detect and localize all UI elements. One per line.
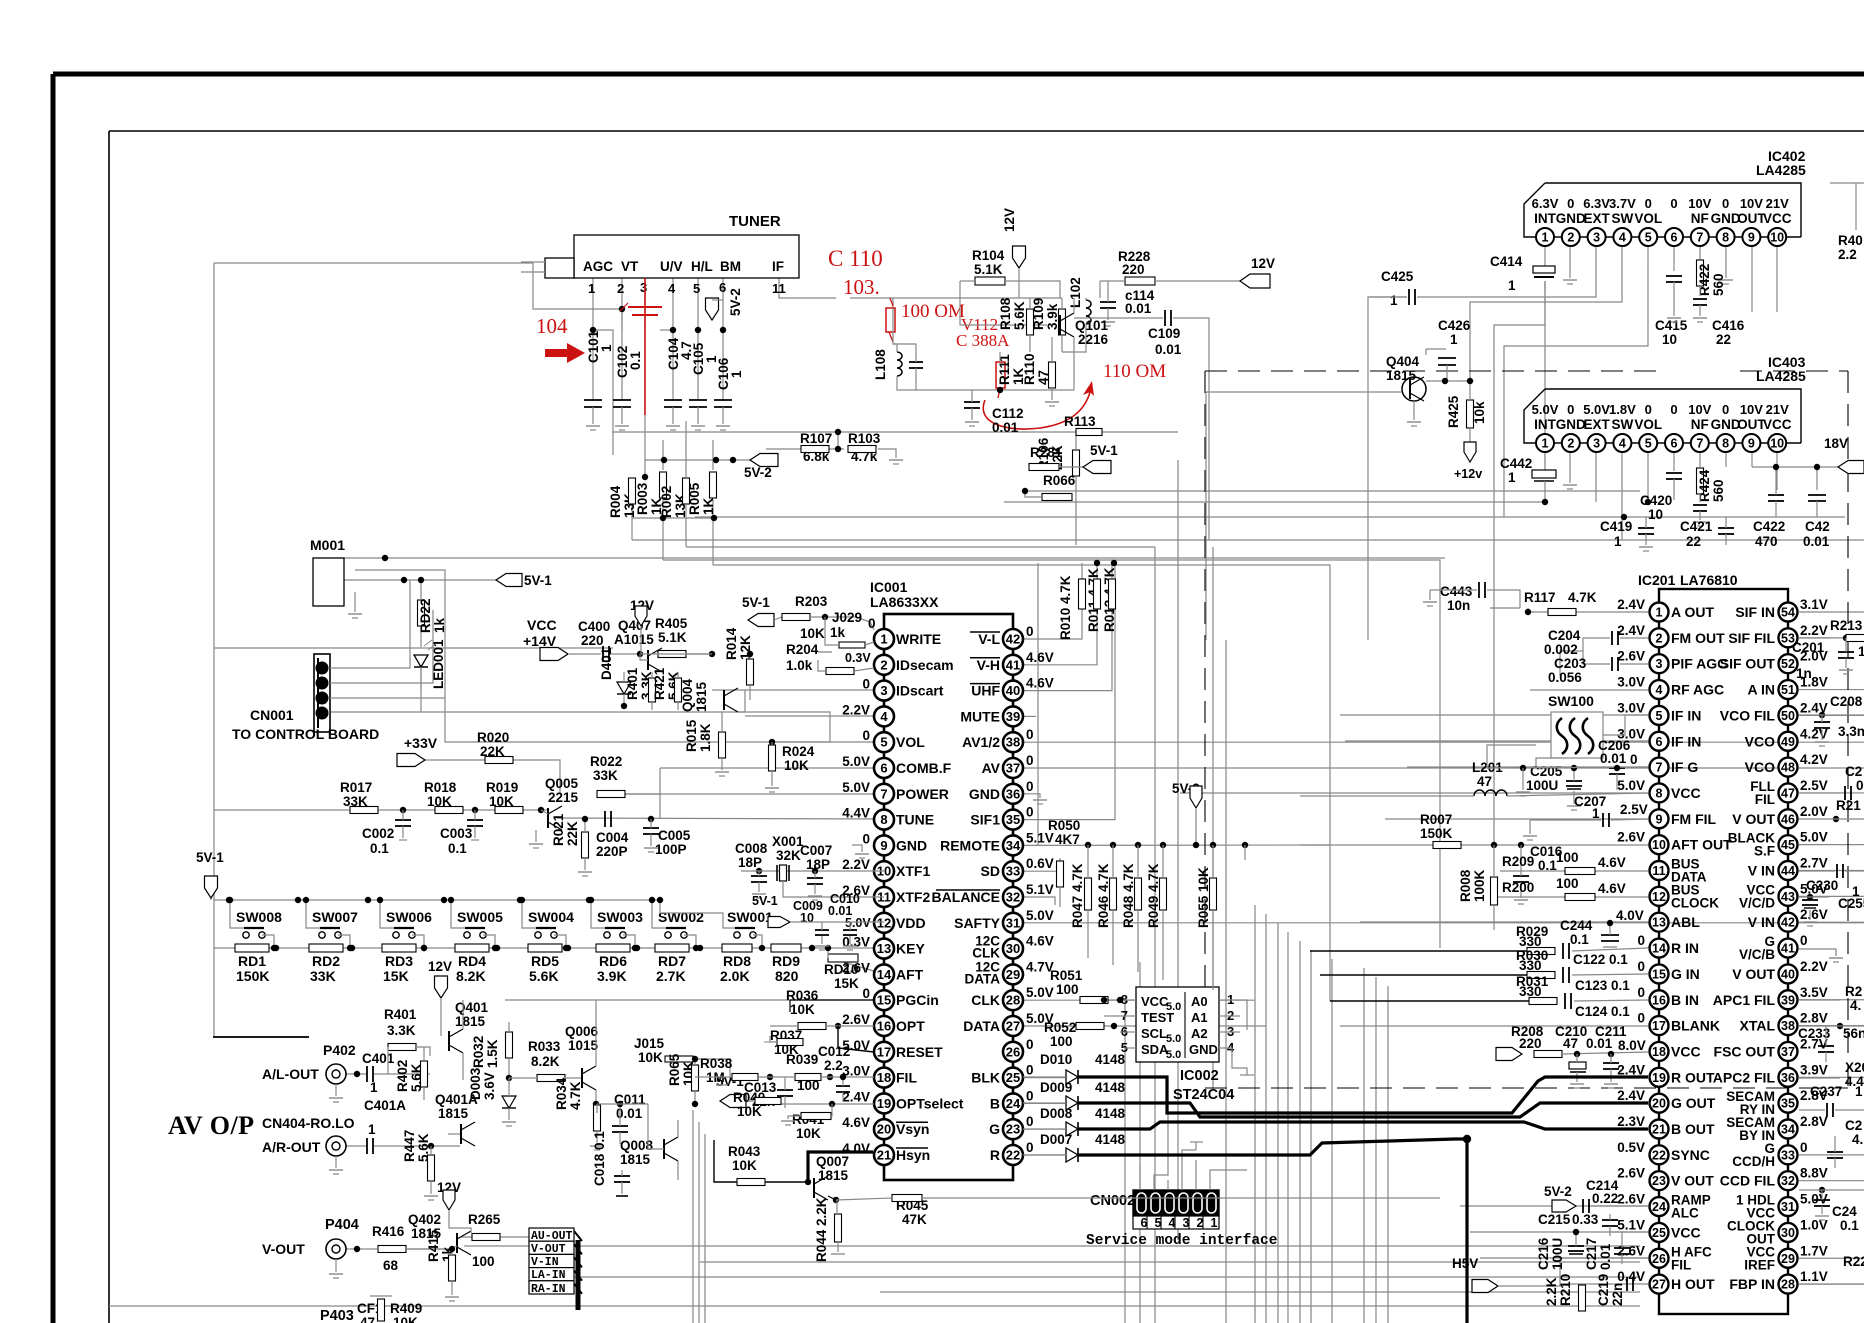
svg-text:R422: R422: [1697, 264, 1712, 296]
svg-text:D008: D008: [1040, 1106, 1073, 1121]
svg-text:VCC: VCC: [1763, 417, 1792, 432]
svg-text:31: 31: [1006, 915, 1020, 930]
svg-text:S.F: S.F: [1754, 844, 1775, 859]
svg-text:R033: R033: [528, 1039, 561, 1054]
svg-text:SIF IN: SIF IN: [1735, 604, 1775, 620]
svg-text:0.002: 0.002: [1544, 642, 1578, 657]
svg-text:IF IN: IF IN: [1671, 733, 1701, 749]
svg-text:1: 1: [1614, 534, 1622, 549]
svg-text:4148: 4148: [1095, 1132, 1126, 1147]
svg-text:Q404: Q404: [1386, 354, 1420, 369]
svg-text:2215: 2215: [548, 790, 579, 805]
svg-text:2: 2: [880, 657, 887, 672]
svg-text:25: 25: [1006, 1070, 1020, 1085]
svg-text:44: 44: [1781, 864, 1795, 878]
svg-text:R IN: R IN: [1671, 940, 1699, 956]
svg-text:R415: R415: [426, 1229, 441, 1262]
svg-text:1815: 1815: [694, 681, 709, 712]
svg-text:GND: GND: [969, 786, 1000, 802]
svg-text:C255: C255: [1838, 896, 1864, 911]
svg-text:R203: R203: [795, 594, 828, 609]
svg-text:35: 35: [1781, 1097, 1795, 1111]
svg-text:3: 3: [1593, 231, 1600, 245]
svg-text:B IN: B IN: [1671, 992, 1699, 1008]
svg-text:C002: C002: [362, 826, 394, 841]
svg-text:V-IN: V-IN: [531, 1256, 559, 1269]
svg-text:SW006: SW006: [386, 909, 432, 925]
svg-text:C205: C205: [1530, 764, 1563, 779]
svg-text:8.8V: 8.8V: [1800, 1166, 1828, 1181]
svg-text:16: 16: [1652, 993, 1666, 1007]
svg-text:68: 68: [383, 1258, 399, 1273]
svg-text:GND: GND: [1556, 211, 1586, 226]
svg-text:A/L-OUT: A/L-OUT: [262, 1066, 319, 1082]
svg-text:820: 820: [775, 968, 799, 984]
svg-text:4: 4: [668, 281, 676, 296]
svg-text:22: 22: [1716, 332, 1731, 347]
svg-text:10n: 10n: [1447, 598, 1470, 613]
svg-text:R019: R019: [486, 780, 518, 795]
svg-text:18P: 18P: [806, 857, 830, 872]
svg-text:R065: R065: [667, 1053, 682, 1086]
svg-text:2.4V: 2.4V: [1617, 597, 1645, 612]
svg-text:43: 43: [1781, 890, 1795, 904]
svg-text:0: 0: [1567, 402, 1574, 417]
svg-text:1K: 1K: [701, 497, 716, 515]
svg-text:R227: R227: [1843, 1254, 1864, 1269]
svg-text:2.6V: 2.6V: [1617, 1192, 1645, 1207]
svg-text:H/L: H/L: [691, 259, 713, 274]
svg-text:37: 37: [1781, 1045, 1795, 1059]
svg-text:R018: R018: [424, 780, 457, 795]
svg-text:100: 100: [1556, 850, 1579, 865]
svg-text:X20: X20: [1845, 1060, 1864, 1075]
svg-text:6: 6: [1656, 735, 1663, 749]
svg-text:1: 1: [1542, 231, 1549, 245]
svg-text:4: 4: [1619, 437, 1626, 451]
svg-text:RD3: RD3: [385, 953, 413, 969]
svg-text:C 388A: C 388A: [956, 331, 1010, 350]
svg-text:10K: 10K: [790, 1002, 815, 1017]
svg-text:0: 0: [1800, 1140, 1808, 1155]
svg-text:5.1K: 5.1K: [658, 630, 687, 645]
svg-text:0: 0: [1026, 805, 1034, 820]
svg-text:2.5V: 2.5V: [1620, 802, 1648, 817]
svg-text:0: 0: [1670, 196, 1677, 211]
svg-text:V-H: V-H: [977, 657, 1000, 673]
svg-text:0.01: 0.01: [1125, 301, 1152, 316]
svg-text:6.3V: 6.3V: [1583, 196, 1610, 211]
svg-text:RD1: RD1: [238, 953, 266, 969]
svg-text:10: 10: [1770, 231, 1784, 245]
svg-text:V OUT: V OUT: [1671, 1173, 1714, 1189]
svg-text:VCC: VCC: [527, 617, 557, 633]
svg-text:RD8: RD8: [723, 953, 751, 969]
svg-text:C122 0.1: C122 0.1: [1573, 952, 1628, 967]
svg-text:0: 0: [1026, 1140, 1034, 1155]
svg-text:ABL: ABL: [1671, 914, 1700, 930]
svg-text:5.0V: 5.0V: [1532, 402, 1559, 417]
svg-text:17: 17: [1652, 1019, 1666, 1033]
svg-text:FIL: FIL: [1755, 792, 1775, 807]
svg-text:1815: 1815: [620, 1152, 651, 1167]
svg-text:16: 16: [877, 1019, 891, 1034]
svg-text:C123 0.1: C123 0.1: [1575, 978, 1630, 993]
svg-text:0: 0: [1637, 985, 1645, 1000]
svg-text:R038: R038: [700, 1056, 733, 1071]
svg-text:V-L: V-L: [978, 631, 1000, 647]
svg-text:R416: R416: [372, 1224, 405, 1239]
svg-text:EXT: EXT: [1583, 417, 1610, 432]
svg-text:1: 1: [368, 1122, 376, 1137]
svg-text:SW008: SW008: [236, 909, 282, 925]
svg-text:C2: C2: [1845, 764, 1862, 779]
svg-text:47: 47: [1563, 1036, 1578, 1051]
svg-text:C401: C401: [362, 1051, 395, 1066]
svg-text:3.0V: 3.0V: [1617, 700, 1645, 715]
svg-text:AV1/2: AV1/2: [962, 734, 1000, 750]
svg-text:5.0V: 5.0V: [1800, 830, 1828, 845]
svg-text:A1: A1: [1191, 1010, 1208, 1025]
svg-text:VCO: VCO: [1745, 733, 1775, 749]
svg-text:35: 35: [1006, 812, 1020, 827]
svg-text:R109: R109: [1031, 298, 1046, 330]
svg-text:10K: 10K: [796, 1126, 821, 1141]
svg-text:VT: VT: [621, 259, 639, 274]
svg-text:0: 0: [1670, 402, 1677, 417]
svg-text:C201: C201: [1792, 640, 1825, 655]
svg-text:C400: C400: [578, 619, 610, 634]
svg-text:0: 0: [1637, 933, 1645, 948]
svg-text:5: 5: [693, 281, 700, 296]
svg-text:4148: 4148: [1095, 1080, 1126, 1095]
svg-text:15: 15: [877, 993, 891, 1008]
svg-text:WRITE: WRITE: [896, 631, 941, 647]
svg-text:3.9V: 3.9V: [1800, 1062, 1828, 1077]
svg-text:9: 9: [1748, 231, 1755, 245]
svg-text:15K: 15K: [834, 976, 859, 991]
svg-text:VDD: VDD: [896, 915, 926, 931]
svg-text:SCL: SCL: [1141, 1026, 1167, 1041]
svg-text:6: 6: [1671, 437, 1678, 451]
svg-text:100U: 100U: [1550, 1238, 1565, 1270]
svg-text:0.5V: 0.5V: [1617, 1140, 1645, 1155]
svg-text:LA8633XX: LA8633XX: [870, 594, 939, 610]
svg-text:RD4: RD4: [458, 953, 486, 969]
svg-text:R020: R020: [477, 730, 509, 745]
svg-text:10K: 10K: [393, 1315, 418, 1323]
svg-text:14: 14: [877, 967, 892, 982]
svg-text:2.2V: 2.2V: [842, 702, 870, 717]
svg-text:Q004: Q004: [680, 678, 695, 712]
svg-text:560: 560: [1711, 479, 1726, 502]
svg-text:R039: R039: [786, 1052, 818, 1067]
svg-text:KEY: KEY: [896, 941, 925, 957]
svg-text:Service mode interface: Service mode interface: [1086, 1233, 1277, 1249]
svg-text:4.6V: 4.6V: [1026, 676, 1054, 691]
svg-text:SW003: SW003: [597, 909, 643, 925]
svg-text:5.1V: 5.1V: [1617, 1217, 1645, 1232]
svg-text:1k: 1k: [1858, 644, 1864, 659]
svg-text:27: 27: [1006, 1019, 1020, 1034]
svg-text:RD6: RD6: [599, 953, 627, 969]
svg-text:C244: C244: [1560, 918, 1593, 933]
svg-text:5.0V: 5.0V: [1800, 1192, 1828, 1207]
svg-text:2: 2: [1656, 631, 1663, 645]
svg-text:0: 0: [1637, 959, 1645, 974]
svg-text:110 OM: 110 OM: [1103, 361, 1166, 382]
svg-text:14: 14: [1652, 942, 1666, 956]
svg-text:4.2V: 4.2V: [1800, 752, 1828, 767]
svg-text:0.3V: 0.3V: [842, 935, 870, 950]
svg-text:5.0V: 5.0V: [842, 780, 870, 795]
svg-text:42: 42: [1781, 916, 1795, 930]
svg-text:5.1V: 5.1V: [1026, 882, 1054, 897]
svg-text:SW002: SW002: [658, 909, 704, 925]
svg-text:1: 1: [1508, 470, 1516, 485]
svg-text:SW004: SW004: [528, 909, 574, 925]
svg-text:56n: 56n: [1843, 1026, 1864, 1041]
svg-text:3.6V: 3.6V: [482, 1072, 497, 1100]
svg-text:5.0: 5.0: [1166, 1049, 1181, 1061]
svg-text:C2: C2: [1845, 1118, 1862, 1133]
svg-text:3.0V: 3.0V: [842, 1064, 870, 1079]
svg-text:R032: R032: [471, 1036, 486, 1068]
svg-text:4.0V: 4.0V: [1616, 908, 1644, 923]
svg-text:10K: 10K: [800, 626, 825, 641]
svg-text:1: 1: [1508, 278, 1516, 293]
svg-text:NF: NF: [1691, 417, 1709, 432]
svg-text:7: 7: [1696, 437, 1703, 451]
svg-text:0.3V: 0.3V: [845, 651, 871, 665]
svg-text:Q101: Q101: [1075, 318, 1109, 333]
svg-text:R21: R21: [1836, 798, 1861, 813]
svg-text:6: 6: [1141, 1216, 1148, 1230]
svg-text:R447: R447: [402, 1130, 417, 1162]
svg-text:3.0V: 3.0V: [1617, 675, 1645, 690]
svg-text:470: 470: [1755, 534, 1778, 549]
svg-text:7: 7: [1656, 761, 1663, 775]
svg-text:3.3n: 3.3n: [1838, 724, 1864, 739]
svg-text:V OUT: V OUT: [1732, 811, 1775, 827]
svg-text:5V-1: 5V-1: [524, 573, 552, 588]
svg-text:8: 8: [1722, 437, 1729, 451]
svg-text:4.6V: 4.6V: [1598, 881, 1626, 896]
svg-text:BALANCE: BALANCE: [932, 889, 1000, 905]
svg-text:CLK: CLK: [972, 946, 1000, 961]
svg-text:24: 24: [1652, 1200, 1666, 1214]
svg-text:2.6V: 2.6V: [1617, 1243, 1645, 1258]
svg-text:R40: R40: [1838, 233, 1863, 248]
svg-text:2.2V: 2.2V: [1800, 623, 1828, 638]
svg-text:0.056: 0.056: [1548, 670, 1582, 685]
svg-text:TUNE: TUNE: [896, 812, 934, 828]
svg-text:20: 20: [1652, 1097, 1666, 1111]
svg-text:IREF: IREF: [1744, 1257, 1775, 1272]
svg-text:2.4V: 2.4V: [1617, 1088, 1645, 1103]
svg-text:150K: 150K: [236, 968, 269, 984]
svg-text:R424: R424: [1697, 469, 1712, 502]
svg-text:EXT: EXT: [1583, 211, 1610, 226]
svg-text:4148: 4148: [1095, 1052, 1126, 1067]
svg-text:4K7: 4K7: [1055, 832, 1080, 847]
svg-text:C 110: C 110: [828, 246, 883, 271]
svg-text:C217: C217: [1584, 1238, 1599, 1270]
svg-text:18: 18: [1652, 1045, 1666, 1059]
svg-text:4: 4: [880, 709, 888, 724]
svg-text:C230: C230: [1806, 878, 1838, 893]
svg-text:C208: C208: [1830, 694, 1863, 709]
svg-text:2: 2: [1567, 437, 1574, 451]
svg-text:150K: 150K: [1420, 826, 1453, 841]
svg-text:C216: C216: [1536, 1237, 1551, 1270]
svg-text:0.01: 0.01: [1598, 1243, 1613, 1270]
svg-text:IF: IF: [772, 259, 784, 274]
svg-text:33: 33: [1006, 864, 1020, 879]
svg-text:IF G: IF G: [1671, 759, 1698, 775]
svg-text:R048 4.7K: R048 4.7K: [1121, 863, 1136, 928]
svg-text:R014: R014: [724, 627, 739, 660]
svg-text:20: 20: [877, 1122, 891, 1137]
svg-text:FIL: FIL: [896, 1070, 917, 1086]
svg-text:RA-IN: RA-IN: [531, 1283, 566, 1296]
svg-text:2.3V: 2.3V: [1617, 1114, 1645, 1129]
svg-text:5V-2: 5V-2: [1544, 1184, 1572, 1199]
svg-text:INT: INT: [1534, 417, 1557, 432]
svg-text:H5V: H5V: [1452, 1256, 1478, 1271]
svg-text:2.5V: 2.5V: [1800, 778, 1828, 793]
svg-text:330: 330: [1519, 984, 1542, 999]
svg-text:1.0k: 1.0k: [786, 658, 813, 673]
svg-text:OPT: OPT: [896, 1018, 925, 1034]
svg-text:CLK: CLK: [971, 992, 1000, 1008]
svg-text:INT: INT: [1534, 211, 1557, 226]
svg-text:2: 2: [617, 281, 624, 296]
svg-text:D009: D009: [1040, 1080, 1072, 1095]
svg-text:30: 30: [1006, 941, 1020, 956]
svg-text:23: 23: [1006, 1122, 1020, 1137]
svg-text:VOL: VOL: [896, 734, 925, 750]
svg-text:R421: R421: [652, 667, 667, 700]
svg-text:4: 4: [1169, 1216, 1176, 1230]
svg-text:C005: C005: [658, 828, 691, 843]
svg-text:22K: 22K: [565, 821, 580, 846]
svg-text:XTF1: XTF1: [896, 863, 930, 879]
svg-text:100: 100: [1050, 1034, 1073, 1049]
svg-text:0.: 0.: [1856, 778, 1864, 793]
svg-text:3.5V: 3.5V: [1800, 985, 1828, 1000]
svg-text:12V: 12V: [1002, 208, 1017, 232]
svg-text:34: 34: [1781, 1123, 1795, 1137]
svg-text:RD5: RD5: [531, 953, 559, 969]
svg-text:IC002: IC002: [1180, 1068, 1219, 1084]
svg-text:9: 9: [1748, 437, 1755, 451]
svg-text:L108: L108: [873, 349, 888, 380]
svg-text:0: 0: [1722, 402, 1729, 417]
svg-text:V IN: V IN: [1748, 914, 1775, 930]
svg-text:FIL: FIL: [1671, 1257, 1691, 1272]
svg-text:M001: M001: [310, 537, 345, 553]
svg-text:10: 10: [1770, 437, 1784, 451]
svg-text:VCC: VCC: [1671, 785, 1701, 801]
svg-text:15: 15: [1652, 967, 1666, 981]
svg-text:1: 1: [1592, 806, 1600, 821]
svg-text:22: 22: [1652, 1148, 1666, 1162]
svg-text:42: 42: [1006, 632, 1020, 647]
svg-text:3.9K: 3.9K: [597, 968, 627, 984]
svg-text:R005: R005: [687, 482, 702, 515]
svg-text:10K: 10K: [784, 758, 809, 773]
svg-text:R036: R036: [786, 988, 819, 1003]
svg-text:R015: R015: [684, 719, 699, 752]
svg-text:Q007: Q007: [816, 1154, 849, 1169]
svg-text:R OUT: R OUT: [1671, 1069, 1715, 1085]
svg-text:C415: C415: [1655, 318, 1688, 333]
svg-text:R111: R111: [997, 354, 1012, 385]
svg-text:330: 330: [1519, 934, 1542, 949]
svg-text:C012: C012: [818, 1044, 850, 1059]
svg-text:C419: C419: [1600, 519, 1632, 534]
svg-text:J015: J015: [634, 1036, 665, 1051]
svg-text:7: 7: [1696, 231, 1703, 245]
svg-text:R066: R066: [1043, 473, 1076, 488]
svg-text:0: 0: [1026, 1037, 1034, 1052]
svg-text:0: 0: [1026, 727, 1034, 742]
svg-text:103.: 103.: [843, 275, 880, 299]
svg-text:AV O/P: AV O/P: [168, 1111, 255, 1140]
svg-text:+33V: +33V: [404, 735, 438, 751]
svg-text:12V: 12V: [1251, 256, 1275, 271]
svg-text:B OUT: B OUT: [1671, 1121, 1715, 1137]
svg-text:23: 23: [1652, 1174, 1666, 1188]
svg-text:C426: C426: [1438, 318, 1471, 333]
svg-text:2.6V: 2.6V: [1617, 1166, 1645, 1181]
svg-text:1: 1: [1855, 1084, 1863, 1099]
svg-text:39: 39: [1781, 993, 1795, 1007]
svg-text:BM: BM: [720, 259, 741, 274]
svg-text:45: 45: [1781, 838, 1795, 852]
svg-text:XTF2: XTF2: [896, 889, 930, 905]
svg-text:P404: P404: [325, 1217, 359, 1233]
svg-text:C203: C203: [1554, 656, 1587, 671]
svg-text:0.22: 0.22: [1592, 1191, 1618, 1206]
svg-text:NF: NF: [1691, 211, 1709, 226]
svg-text:0.1: 0.1: [628, 351, 643, 370]
svg-text:1815: 1815: [438, 1106, 469, 1121]
svg-text:0: 0: [1026, 753, 1034, 768]
svg-text:R103: R103: [848, 431, 881, 446]
svg-text:2: 2: [1567, 231, 1574, 245]
svg-text:11: 11: [772, 281, 786, 296]
svg-text:10K: 10K: [732, 1158, 757, 1173]
svg-text:0: 0: [1026, 624, 1034, 639]
svg-text:C008: C008: [735, 841, 768, 856]
svg-text:C422: C422: [1753, 519, 1785, 534]
svg-text:C112: C112: [992, 406, 1024, 421]
svg-text:VOL: VOL: [1634, 211, 1662, 226]
svg-text:SW: SW: [1612, 417, 1634, 432]
svg-text:CN002: CN002: [1090, 1193, 1135, 1209]
svg-text:H OUT: H OUT: [1671, 1276, 1715, 1292]
svg-text:1: 1: [599, 344, 614, 352]
svg-text:0: 0: [862, 986, 870, 1001]
svg-text:SW001: SW001: [727, 909, 773, 925]
svg-text:C003: C003: [440, 826, 473, 841]
svg-text:R200: R200: [1502, 880, 1534, 895]
svg-text:RD2: RD2: [312, 953, 340, 969]
svg-text:100: 100: [1056, 982, 1079, 997]
svg-text:100: 100: [797, 1078, 820, 1093]
